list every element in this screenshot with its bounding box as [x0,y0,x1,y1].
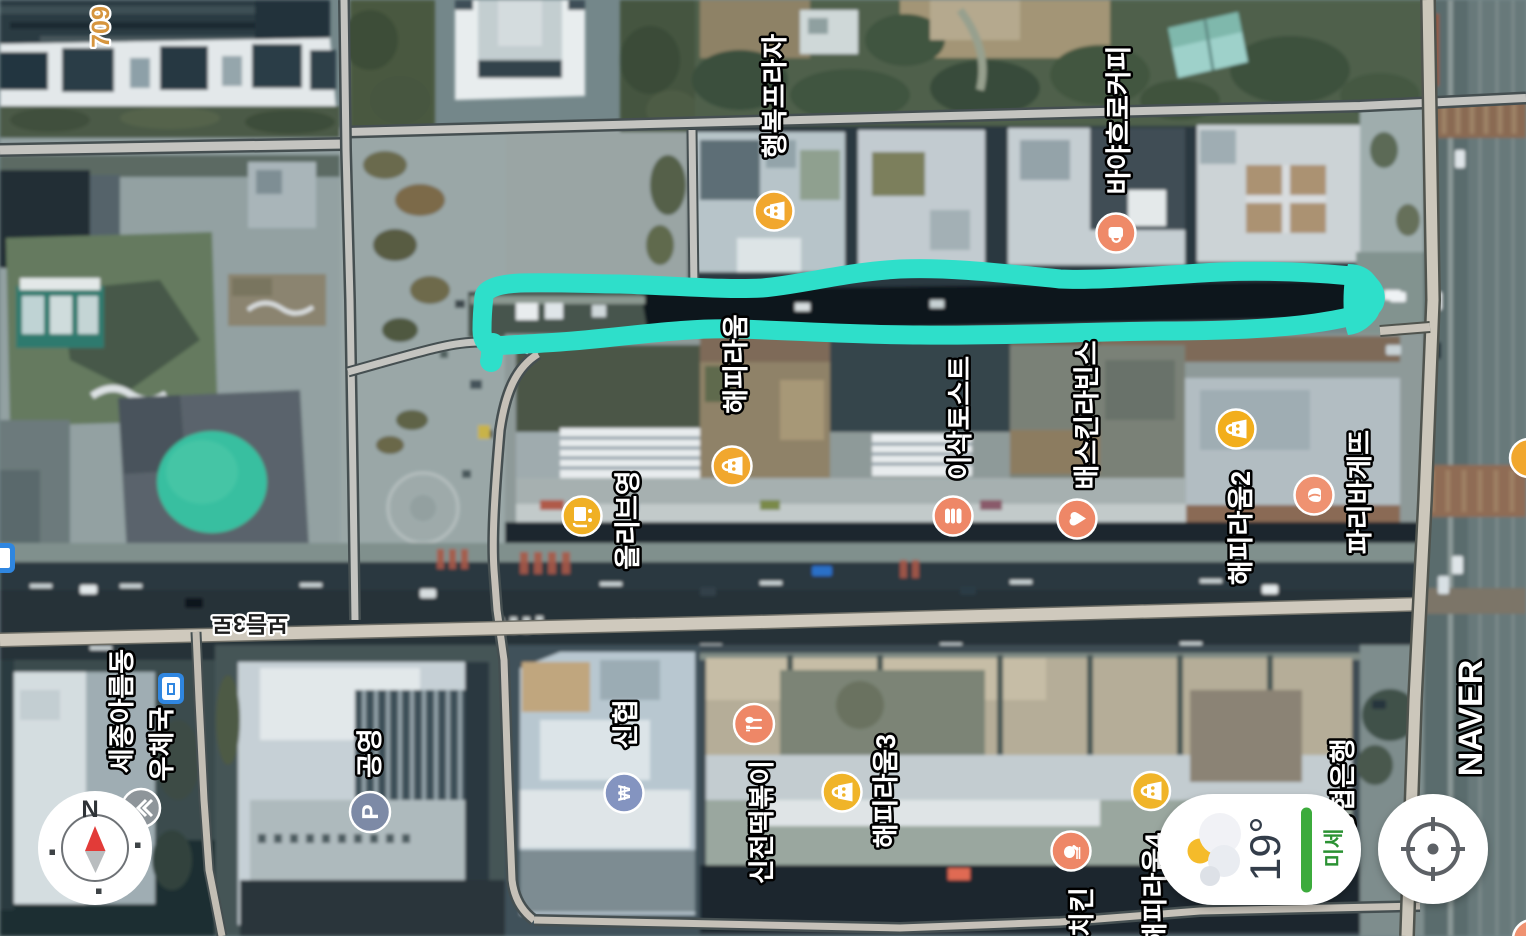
svg-text:해피라움2: 해피라움2 [1226,471,1256,585]
svg-text:공영: 공영 [355,728,385,778]
svg-text:올리브영: 올리브영 [613,470,643,569]
svg-text:세종아름동: 세종아름동 [107,649,137,773]
svg-text:파리바게뜨: 파리바게뜨 [1345,430,1375,554]
svg-text:이삭토스트: 이삭토스트 [945,356,975,480]
svg-text:치킨: 치킨 [1067,887,1097,936]
svg-text:신협: 신협 [611,699,641,749]
svg-text:NAVER: NAVER [1452,660,1490,777]
svg-text:미세: 미세 [1323,829,1346,868]
svg-text:P: P [357,804,383,819]
svg-text:바야흐로커피: 바야흐로커피 [1104,45,1134,194]
svg-text:19°: 19° [1242,816,1290,881]
svg-text:709: 709 [87,6,115,48]
svg-text:행복프라자: 행복프라자 [760,34,790,158]
svg-text:보듬3로: 보듬3로 [212,611,288,637]
svg-text:해피라움: 해피라움 [721,314,751,413]
svg-text:우체국: 우체국 [147,707,177,782]
svg-text:신전떡볶이: 신전떡볶이 [747,760,777,884]
svg-text:N: N [81,796,98,823]
svg-text:해피라움3: 해피라움3 [871,734,901,848]
svg-text:배스킨라빈스: 배스킨라빈스 [1072,340,1102,489]
